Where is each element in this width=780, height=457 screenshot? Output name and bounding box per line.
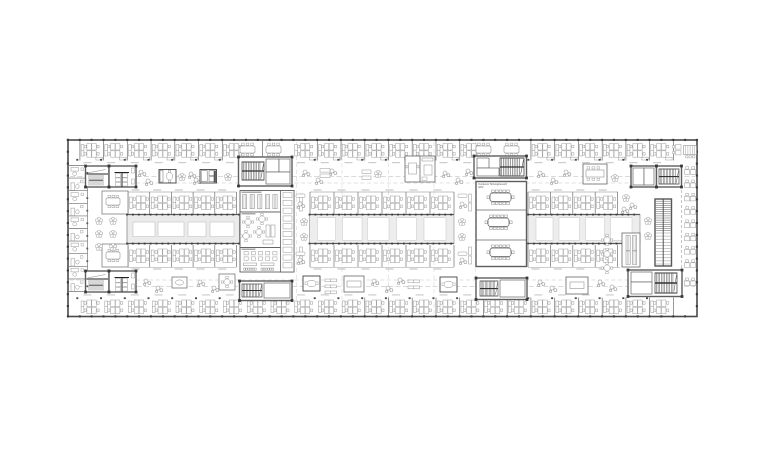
svg-text:EDV: EDV (479, 186, 484, 189)
